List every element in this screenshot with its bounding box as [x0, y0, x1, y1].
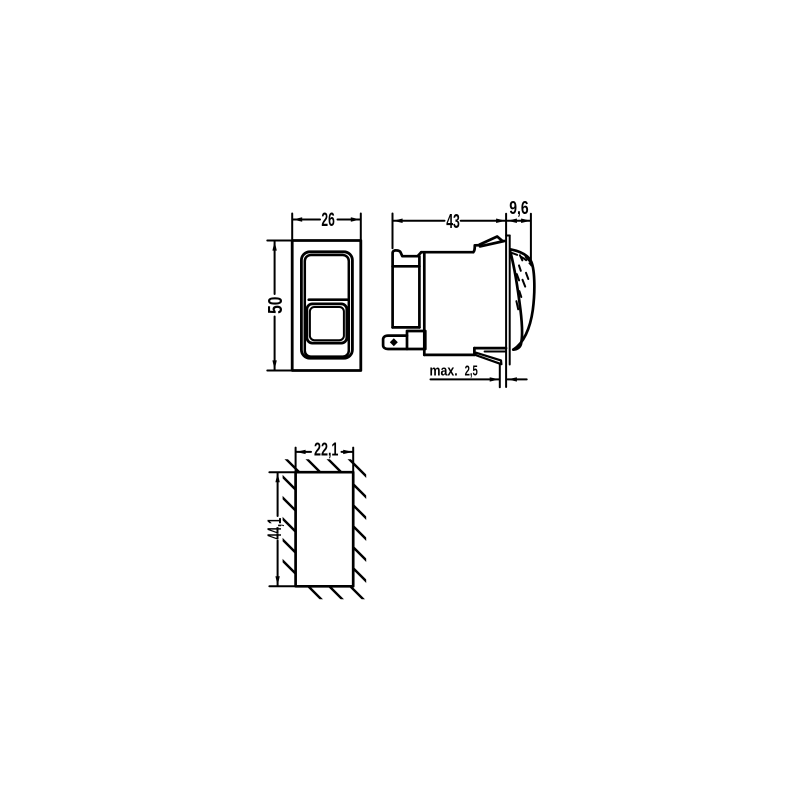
svg-text:50: 50 [265, 297, 287, 314]
svg-text:2,5: 2,5 [465, 362, 478, 379]
svg-text:44,1: 44,1 [265, 518, 286, 540]
svg-text:9,6: 9,6 [509, 197, 528, 218]
svg-text:26: 26 [321, 209, 334, 231]
svg-text:43: 43 [446, 211, 460, 233]
svg-text:max.: max. [430, 362, 458, 379]
svg-text:22,1: 22,1 [314, 438, 339, 459]
